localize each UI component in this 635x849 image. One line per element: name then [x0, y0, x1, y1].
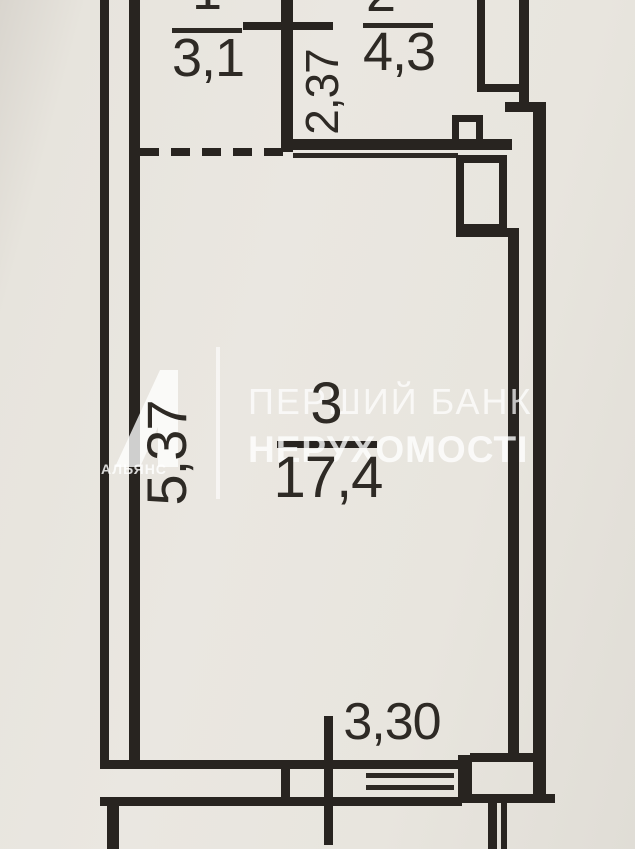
room1-area-label: 3,1	[172, 31, 244, 85]
wall-corridor-bottom-inner	[293, 153, 458, 158]
wall-stub-bottom-left	[107, 806, 119, 849]
room1-number-clipped: 1	[192, 0, 222, 18]
shaft-duct	[456, 155, 507, 232]
room3-area-label: 17,4	[274, 449, 383, 507]
watermark-line1: ПЕРШИЙ БАНК	[248, 384, 532, 420]
room3-number-label: 3	[310, 375, 341, 433]
wall-topright-bottom	[477, 84, 523, 92]
dashed-partition	[140, 148, 287, 156]
wall-stub-bottom-right-1	[488, 803, 497, 849]
wall-topright-left	[477, 0, 485, 92]
wall-top-lintel	[243, 22, 333, 30]
wall-bottomright-top	[470, 753, 545, 762]
dimension-237-label: 2,37	[299, 49, 345, 135]
dimension-330-label: 3,30	[343, 696, 440, 748]
wall-left-outer	[100, 0, 109, 768]
window-hatch-line-1	[366, 773, 454, 778]
wall-stub-bottom-right-2	[501, 803, 507, 849]
dimension-537-label: 5,37	[139, 401, 195, 506]
watermark-divider	[216, 347, 220, 499]
wall-bottom-divider	[281, 760, 290, 806]
wall-right-inner	[508, 228, 519, 755]
wall-topright-vertical	[519, 0, 529, 112]
shaft-small-square	[452, 115, 483, 147]
wall-bottomright-bottom	[470, 794, 555, 803]
wall-right-outer	[533, 102, 546, 803]
dimension-tick-330	[324, 716, 333, 845]
room2-number-clipped: 2	[366, 0, 396, 20]
room2-area-label: 4,3	[363, 25, 435, 79]
window-hatch-line-2	[366, 785, 454, 790]
floor-plan-photo: АЛЬЯНС ПЕРШИЙ БАНК НЕРУХОМОСТІ 1 2 3,1 4…	[0, 0, 635, 849]
